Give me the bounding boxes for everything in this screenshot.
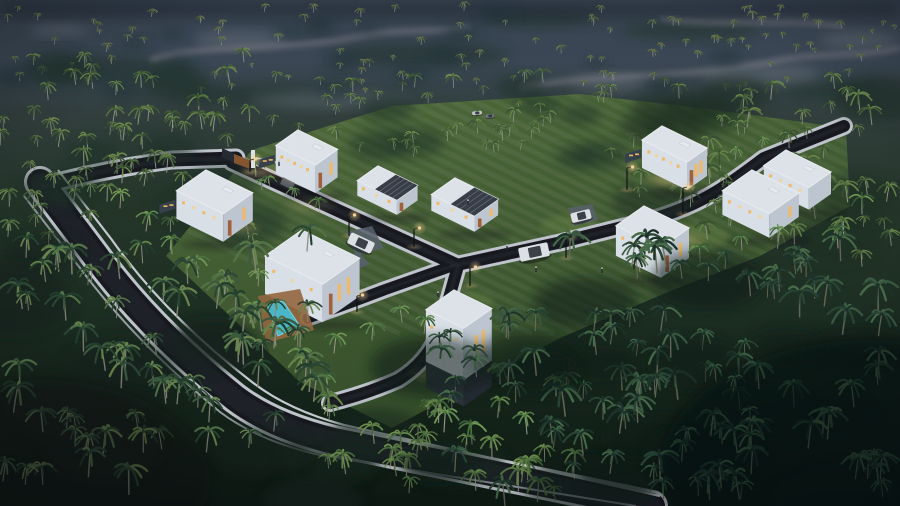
aerial-render-viewport (0, 0, 900, 506)
vignette (0, 0, 900, 506)
aerial-render-svg (0, 0, 900, 506)
